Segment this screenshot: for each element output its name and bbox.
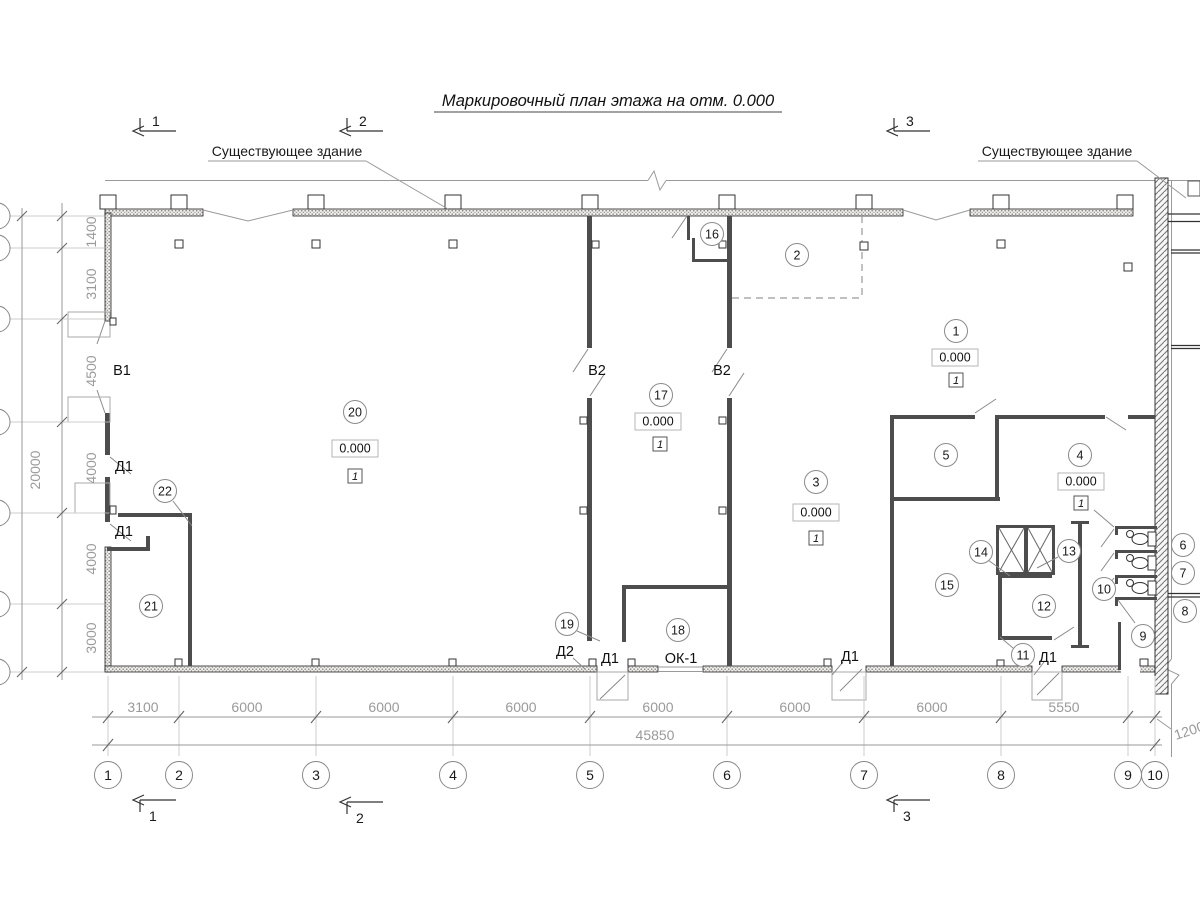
floor-plan-page: 1 2 3 1 2 3 — [0, 0, 1200, 900]
column-markers — [175, 240, 1132, 514]
room-number: 2 — [794, 249, 801, 263]
room-number: 22 — [158, 485, 172, 499]
floor-mark: 1 — [352, 471, 358, 483]
room-number: 21 — [144, 600, 158, 614]
room-tag-20: 20 — [344, 401, 367, 424]
gate-label: В2 — [713, 363, 731, 379]
grid-axis-number: 3 — [312, 767, 320, 783]
section-number: 1 — [149, 808, 157, 824]
elevation-mark-room1: 0.000 1 — [932, 349, 978, 387]
door-swing-box — [1032, 672, 1062, 700]
grid-axis-number: 10 — [1147, 767, 1163, 783]
grid-axis-number: 8 — [997, 767, 1005, 783]
room-number: 14 — [974, 546, 988, 560]
floor-plan-canvas: 1 2 3 1 2 3 — [0, 0, 1200, 900]
room-tag-1: 1 — [945, 320, 968, 343]
room-number: 4 — [1077, 449, 1084, 463]
door-label: Д1 — [115, 459, 133, 475]
elevation-mark-room4: 0.000 1 — [1058, 473, 1104, 510]
elevation-mark-room20: 0.000 1 — [332, 440, 378, 483]
dim-total: 45850 — [636, 727, 675, 743]
right-wall — [1155, 178, 1168, 694]
room-number: 3 — [813, 476, 820, 490]
elevation-value: 0.000 — [642, 415, 673, 429]
section-mark-2-bottom: 2 — [340, 797, 383, 826]
toilet-icon — [1127, 580, 1157, 596]
dim-seg: 3000 — [83, 622, 99, 653]
section-number: 3 — [903, 808, 911, 824]
interior-walls — [107, 216, 1157, 670]
opening-labels: В1 В2 В2 Д1 Д1 Д2 Д1 Д1 Д1 ОК-1 — [113, 363, 1057, 667]
room-tag-9: 9 — [1132, 625, 1155, 648]
section-number: 2 — [359, 113, 367, 129]
door-label: Д1 — [115, 524, 133, 540]
dim-seg: 3100 — [127, 699, 158, 715]
toilet-icons — [1127, 531, 1157, 596]
elevation-value: 0.000 — [939, 351, 970, 365]
dim-seg: 6000 — [642, 699, 673, 715]
dim-seg: 3100 — [83, 268, 99, 299]
room-tag-3: 3 — [805, 471, 828, 494]
page-title: Маркировочный план этажа на отм. 0.000 — [442, 92, 775, 110]
room-tag-16: 16 — [701, 223, 724, 246]
section-mark-1-top: 1 — [133, 113, 176, 136]
door-label: Д2 — [556, 644, 574, 660]
room-tag-13: 13 — [1058, 540, 1081, 563]
room-number: 19 — [560, 618, 574, 632]
dim-seg: 5550 — [1048, 699, 1079, 715]
section-mark-3-bottom: 3 — [887, 795, 930, 824]
grid-axis-number: 7 — [860, 767, 868, 783]
dim-seg: 6000 — [779, 699, 810, 715]
grid-axis-number: 5 — [586, 767, 594, 783]
room-number: 16 — [705, 228, 719, 242]
room-tag-10: 10 — [1093, 578, 1116, 601]
section-mark-3-top: 3 — [887, 113, 930, 136]
room-number: 1 — [953, 325, 960, 339]
room-number: 13 — [1062, 545, 1076, 559]
room-number: 20 — [348, 406, 362, 420]
room-number: 11 — [1017, 649, 1030, 663]
door-label: Д1 — [601, 651, 619, 667]
dim-seg: 4000 — [83, 452, 99, 483]
left-dimensions: 1400 3100 4500 4000 4000 3000 20000 — [0, 203, 104, 685]
floor-mark: 1 — [813, 533, 819, 545]
grid-axis-number: 6 — [723, 767, 731, 783]
existing-building-label-left: Существующее здание — [212, 143, 363, 159]
room-number: 6 — [1180, 539, 1187, 553]
room-number: 8 — [1182, 605, 1189, 619]
room-tag-8: 8 — [1174, 600, 1197, 623]
room-tag-19: 19 — [556, 613, 579, 636]
section-number: 2 — [356, 810, 364, 826]
floor-mark: 1 — [953, 375, 959, 387]
room-number: 5 — [943, 449, 950, 463]
dim-seg-small: 1200 — [1172, 718, 1200, 743]
floor-mark: 1 — [657, 439, 663, 451]
existing-column-stub — [1188, 181, 1200, 196]
drawing-title: Маркировочный план этажа на отм. 0.000 — [434, 92, 782, 112]
room-number: 10 — [1097, 583, 1111, 597]
dim-seg: 4000 — [83, 543, 99, 574]
left-wall — [68, 213, 131, 672]
room-number: 15 — [940, 579, 954, 593]
room-tag-5: 5 — [935, 444, 958, 467]
section-number: 1 — [152, 113, 160, 129]
room-tag-18: 18 — [667, 619, 690, 642]
dim-seg: 6000 — [916, 699, 947, 715]
room-tag-4: 4 — [1069, 444, 1092, 467]
room-tag-12: 12 — [1033, 595, 1056, 618]
room-tag-2: 2 — [786, 244, 809, 267]
room-tag-14: 14 — [970, 541, 993, 564]
toilet-icon — [1127, 555, 1157, 571]
room-number: 12 — [1037, 600, 1051, 614]
floor-mark: 1 — [1078, 498, 1084, 510]
elevation-mark-room3: 0.000 1 — [793, 504, 839, 545]
room-number: 18 — [671, 624, 685, 638]
elevation-value: 0.000 — [1065, 475, 1096, 489]
grid-axis-number: 2 — [175, 767, 183, 783]
room-tags: 1 2 3 4 5 6 7 8 9 10 11 12 13 14 15 16 1… — [140, 223, 1197, 667]
top-wall — [100, 195, 1133, 221]
dim-total: 20000 — [27, 450, 43, 489]
bottom-dimensions: 3100 6000 6000 6000 6000 6000 6000 5550 … — [92, 676, 1200, 789]
dim-seg: 4500 — [83, 355, 99, 386]
elevation-value: 0.000 — [339, 442, 370, 456]
room-tag-15: 15 — [936, 574, 959, 597]
room-tag-21: 21 — [140, 595, 163, 618]
room-number: 9 — [1140, 630, 1147, 644]
dim-seg: 6000 — [505, 699, 536, 715]
dim-seg: 6000 — [231, 699, 262, 715]
dim-seg: 1400 — [83, 216, 99, 247]
toilet-icon — [1127, 531, 1157, 547]
section-mark-2-top: 2 — [340, 113, 383, 136]
grid-axis-number: 1 — [104, 767, 112, 783]
door-label: Д1 — [1039, 650, 1057, 666]
room-number: 7 — [1180, 567, 1187, 581]
room-tag-22: 22 — [154, 480, 177, 503]
room-tag-6: 6 — [1172, 534, 1195, 557]
room-tag-7: 7 — [1172, 562, 1195, 585]
gate-label: В1 — [113, 363, 131, 379]
bottom-wall — [105, 659, 1155, 700]
existing-building-label-right: Существующее здание — [982, 143, 1133, 159]
existing-building-labels: Существующее здание Существующее здание — [212, 143, 1133, 159]
dim-seg: 6000 — [368, 699, 399, 715]
grid-axis-number: 9 — [1124, 767, 1132, 783]
window-label: ОК-1 — [665, 651, 698, 667]
door-swing-box — [832, 672, 866, 700]
room-tag-17: 17 — [650, 384, 673, 407]
grid-axis-number: 4 — [449, 767, 457, 783]
elevation-mark-room17: 0.000 1 — [635, 413, 681, 451]
elevation-value: 0.000 — [800, 506, 831, 520]
room-number: 17 — [654, 389, 668, 403]
door-label: Д1 — [841, 649, 859, 665]
gate-label: В2 — [588, 363, 606, 379]
room-tag-11: 11 — [1012, 644, 1035, 667]
section-number: 3 — [906, 113, 914, 129]
section-mark-1-bottom: 1 — [133, 795, 176, 824]
